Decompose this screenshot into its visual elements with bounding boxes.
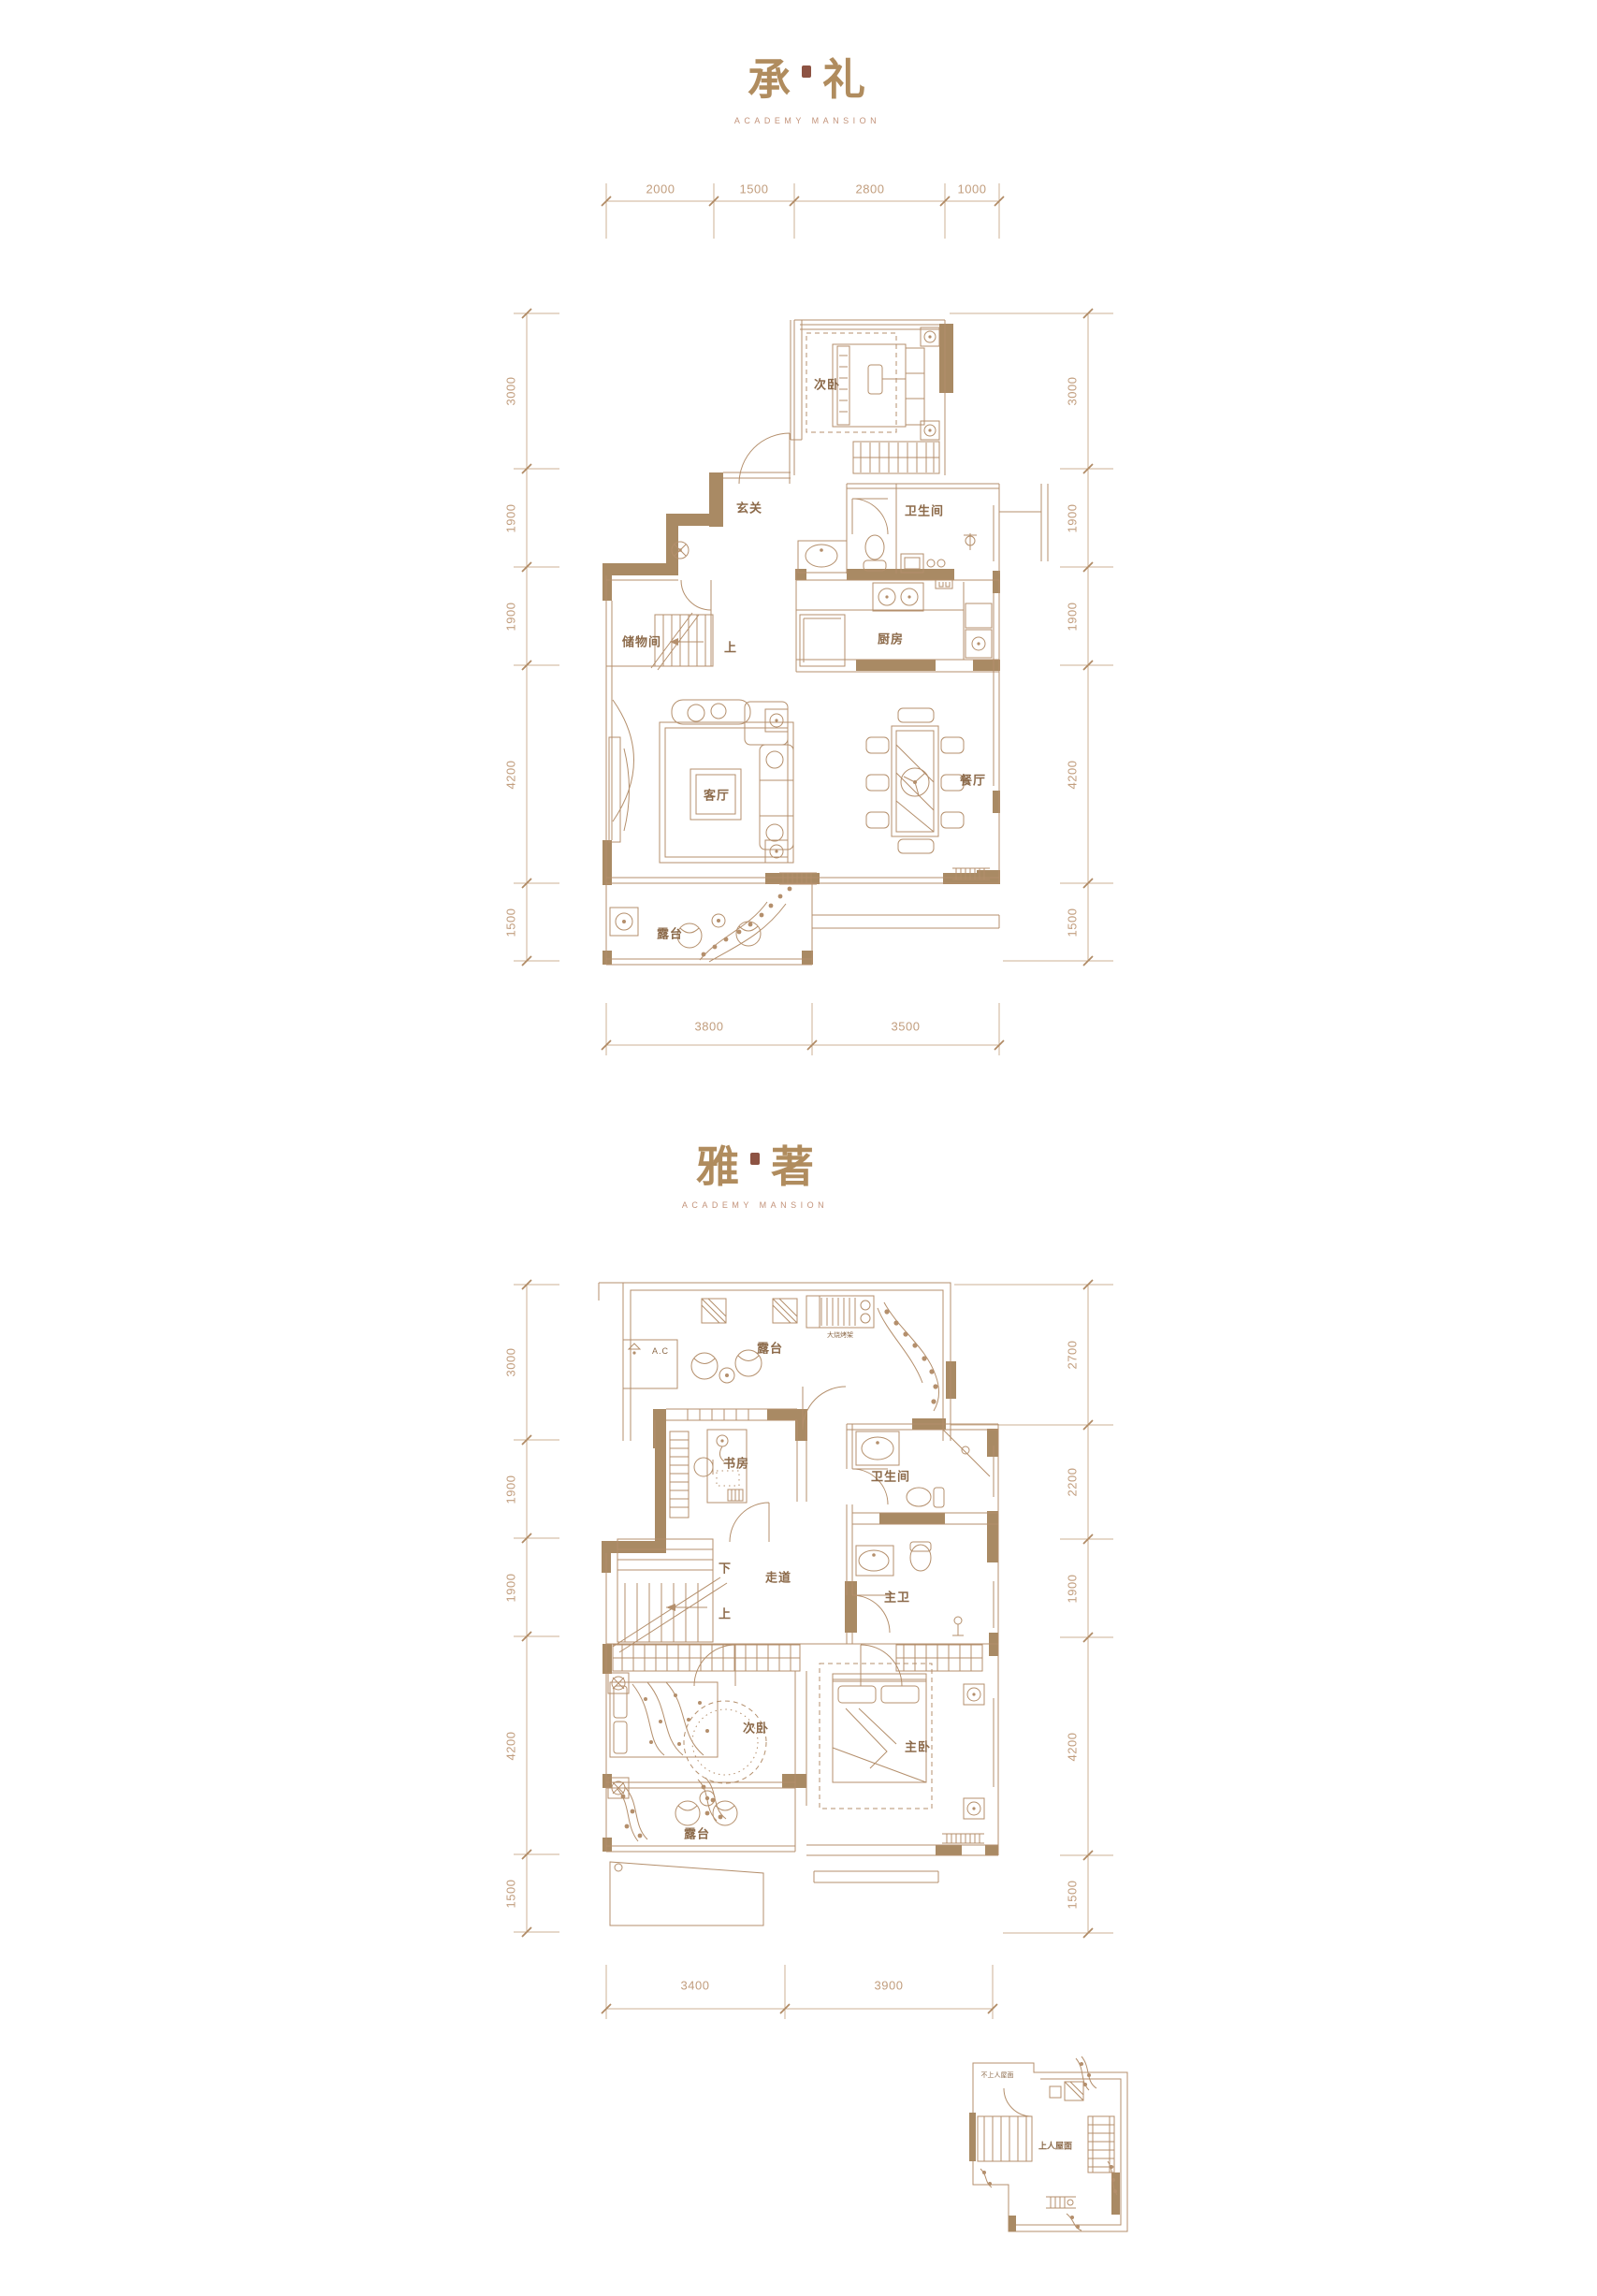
dim-label: 1900 <box>504 1475 518 1504</box>
room-label-study: 书房 <box>723 1454 749 1472</box>
room-label-bathroom2: 卫生间 <box>871 1467 910 1485</box>
bookshelf-icon <box>670 1431 689 1518</box>
basin-icon <box>862 1437 893 1460</box>
stairs-up-label: 上 <box>724 638 737 656</box>
plan2-outline <box>599 1283 998 1925</box>
dim-label: 4200 <box>504 1732 518 1761</box>
plants <box>1067 2214 1082 2231</box>
plan1-bedroom-furniture <box>806 327 939 473</box>
plan1-title-char-left: 承 <box>748 58 791 101</box>
room-label-storage: 储物间 <box>622 632 661 650</box>
dim-label: 1900 <box>1066 1575 1080 1604</box>
room-label-terrace2: 露台 <box>684 1824 710 1842</box>
basin-icon <box>806 545 837 567</box>
plan2-stairs <box>613 1539 727 1652</box>
dim-label: 3000 <box>1066 377 1080 406</box>
dim-label: 2200 <box>1066 1468 1080 1497</box>
brochure-page: 承 礼 ACADEMY MANSION 雅 著 ACADEMY MANSION … <box>0 0 1597 2296</box>
room-label-foyer: 玄关 <box>736 499 762 516</box>
stove-icon <box>873 583 923 611</box>
toilet-icon <box>910 1545 931 1571</box>
dim-label: 3000 <box>504 1348 518 1377</box>
dim-label: 1500 <box>1066 1881 1080 1910</box>
dim-label: 3900 <box>875 1979 904 1993</box>
storage-door-arc <box>681 580 711 610</box>
plan1-title-char-right: 礼 <box>822 58 865 101</box>
room-label-bathroom: 卫生间 <box>905 501 944 519</box>
dim-label: 4200 <box>1066 1733 1080 1762</box>
dim-label: 1000 <box>958 182 987 196</box>
dim-label: 4200 <box>504 761 518 790</box>
plan1-terrace-furniture <box>610 887 791 962</box>
seal-icon <box>802 65 811 78</box>
room-label-living: 客厅 <box>704 786 730 804</box>
dim-label: 1900 <box>504 603 518 632</box>
dim-label: 2800 <box>856 182 885 196</box>
plan1-living-furniture <box>609 700 793 863</box>
plan2-terrace-furniture <box>617 1778 737 1841</box>
plan1-subtitle: ACADEMY MANSION <box>686 116 929 125</box>
stairs-down-label: 下 <box>719 1559 732 1577</box>
dim-label: 3400 <box>681 1979 710 1993</box>
toilet-icon <box>865 535 884 559</box>
study-door <box>730 1503 769 1542</box>
bed-icon <box>833 1679 926 1782</box>
room-label-dining: 餐厅 <box>960 771 986 789</box>
room-label-roof-terrace: 露台 <box>757 1339 783 1357</box>
dim-label: 1900 <box>1066 504 1080 533</box>
plants <box>884 1302 939 1411</box>
plan1-dining-furniture <box>866 708 964 853</box>
plants <box>700 902 786 962</box>
stairs-up-label: 上 <box>719 1605 732 1622</box>
dim-label: 1500 <box>504 908 518 937</box>
dim-label: 1500 <box>740 182 769 196</box>
room-label-bedroom2b: 次卧 <box>743 1719 769 1737</box>
plan2-title-char-left: 雅 <box>696 1145 739 1188</box>
dim-label: 3000 <box>504 377 518 406</box>
foyer-door-arc <box>739 433 790 484</box>
dim-label: 3800 <box>695 1020 724 1034</box>
sink-icon <box>965 603 992 628</box>
rug <box>820 1664 932 1809</box>
plan2-title-char-right: 著 <box>771 1145 814 1188</box>
fridge-icon <box>800 615 845 666</box>
room-label-bedroom2: 次卧 <box>814 375 840 393</box>
round-rug <box>684 1701 766 1783</box>
seal-icon <box>750 1153 760 1165</box>
dim-label: 1500 <box>504 1880 518 1909</box>
room-label-kitchen: 厨房 <box>878 630 904 647</box>
dim-label: 1900 <box>1066 603 1080 632</box>
bathroom-door-arc <box>852 499 888 534</box>
room-label-master: 主卧 <box>905 1737 931 1755</box>
dim-label: 2700 <box>1066 1341 1080 1370</box>
roof-label-non-accessible: 不上人屋面 <box>981 2071 1014 2080</box>
dim-label: 1900 <box>504 1574 518 1603</box>
roof-label-accessible: 上人屋面 <box>1038 2140 1072 2152</box>
dim-label: 1900 <box>504 504 518 533</box>
plan1-bathroom-fixtures <box>798 533 977 573</box>
plan1-dimensions <box>514 183 1113 1055</box>
plan2-study-furniture <box>670 1430 747 1518</box>
terrace-entry-door <box>803 1387 846 1430</box>
plan2-master-furniture <box>820 1664 984 1819</box>
chair-icon <box>675 1801 700 1825</box>
plan2-title: 雅 著 <box>652 1145 858 1188</box>
dim-label: 4200 <box>1066 761 1080 790</box>
chair-icon <box>691 1353 718 1379</box>
plan1-title: 承 礼 <box>704 58 909 101</box>
shower-corner <box>943 1430 990 1476</box>
dim-label: 3500 <box>892 1020 921 1034</box>
shower-head <box>954 1617 962 1624</box>
room-label-terrace: 露台 <box>657 924 683 942</box>
roof-stairs <box>978 2116 1032 2161</box>
bbq-label: 大烧烤架 <box>827 1330 853 1340</box>
tv-cabinet <box>609 737 620 842</box>
dim-label: 1500 <box>1066 908 1080 937</box>
ac-unit-label: A.C <box>652 1346 669 1356</box>
plan1-kitchen-fixtures <box>800 580 992 666</box>
dim-label: 2000 <box>646 182 675 196</box>
plan2-subtitle: ACADEMY MANSION <box>633 1200 877 1210</box>
room-label-master-bath: 主卫 <box>884 1588 910 1606</box>
room-label-corridor: 走道 <box>765 1568 791 1586</box>
toilet-icon <box>907 1488 931 1506</box>
